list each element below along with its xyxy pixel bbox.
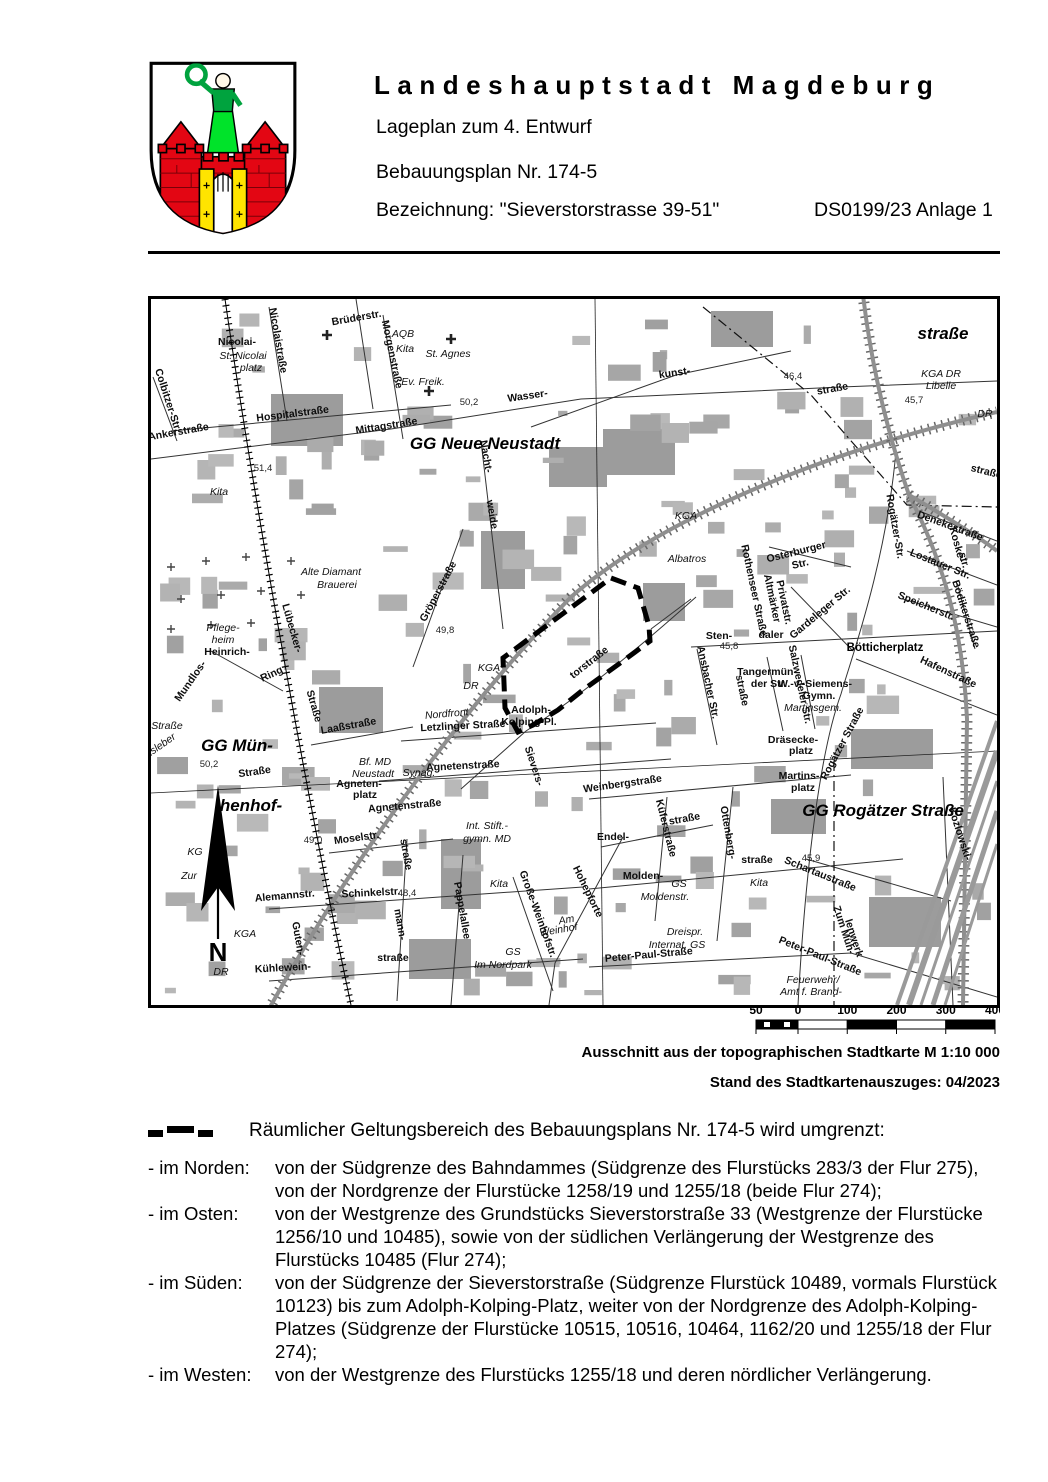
map-label: Im Nordpark: [474, 959, 533, 971]
map-label: Ring: [259, 664, 285, 685]
document-reference: DS0199/23 Anlage 1: [814, 199, 993, 222]
legend-dash-symbol: [148, 1123, 216, 1139]
map-label: KGA: [675, 510, 697, 522]
map-label: Weinbergstraße: [583, 773, 663, 796]
map-label: Bf. MD: [359, 756, 392, 768]
scale-tick-label: 100: [837, 1003, 857, 1017]
map-label: mann-: [391, 908, 408, 942]
boundary-item-west: - im Westen: von der Westgrenze des Flur…: [148, 1363, 1010, 1386]
map-label: Nicolai-: [218, 336, 256, 348]
scale-tick-label: 50: [749, 1003, 763, 1017]
boundary-label: - im Westen:: [148, 1363, 275, 1386]
scale-bar: 500100200300400: [748, 1002, 1000, 1036]
map-label: 49,0: [304, 835, 323, 846]
map-label: Adolph-: [511, 704, 551, 716]
map-label: 49,8: [436, 625, 455, 636]
map-label: Gymn.: [803, 690, 836, 702]
map-label: straße: [668, 810, 701, 827]
map-label: straße: [741, 854, 773, 866]
map-label: Agnetenstraße: [368, 797, 442, 815]
map-label: Kita: [396, 343, 414, 355]
map-label: KG: [187, 846, 202, 858]
map-source-caption: Ausschnitt aus der topographischen Stadt…: [400, 1044, 1000, 1061]
boundary-label: - im Süden:: [148, 1271, 275, 1363]
boundary-text: von der Südgrenze des Bahndammes (Südgre…: [275, 1156, 1010, 1202]
map-label: platz: [353, 789, 377, 801]
document-page: Landeshauptstadt Magdeburg Lageplan zum …: [0, 0, 1048, 1482]
map-label: daler: [758, 629, 783, 641]
map-label: Rogätzer-Str.: [883, 493, 906, 560]
map-label: St. Agnes: [425, 348, 471, 360]
boundary-item-south: - im Süden: von der Südgrenze der Siever…: [148, 1271, 1010, 1363]
map-label: straße.: [970, 462, 997, 482]
map-label: Tangermün-: [737, 666, 797, 678]
map-label: GS: [505, 946, 520, 958]
map-label: Pflege-: [206, 622, 240, 634]
map-label: Libelle: [926, 380, 957, 392]
magdeburg-coat-of-arms: [146, 58, 300, 238]
map-label: 50,2: [200, 759, 219, 770]
map-label: 50,2: [460, 397, 479, 408]
map-label: Große-Weinhofstr.: [517, 869, 560, 959]
map-label: Schinkelstr.: [341, 885, 401, 900]
map-label: 45,8: [720, 641, 739, 652]
map-label: Molden-: [623, 870, 664, 882]
map-label: Brauerei: [317, 579, 357, 591]
map-label: Mittagstraße: [355, 415, 419, 437]
map-label: KGA: [478, 662, 500, 674]
map-label: AQB: [391, 328, 414, 340]
map-label: Mundlos-: [172, 658, 209, 704]
map-label: GG Mün-: [201, 736, 273, 755]
boundary-item-east: - im Osten: von der Westgrenze des Grund…: [148, 1202, 1010, 1271]
map-label: Colbitzer-Str.: [152, 367, 184, 433]
map-label: Endel-: [597, 831, 630, 843]
map-label: Feuerwehr/: [786, 974, 840, 986]
map-canvas: Nicolai-St. NicolaiplatzNicolaistraßeBrü…: [151, 299, 997, 1005]
map-label: Int. Stift.-: [466, 820, 509, 832]
map-label: Agnetenstraße: [426, 758, 500, 774]
map-label: platz: [239, 362, 263, 374]
map-label: Kita: [750, 877, 768, 889]
map-label: Hafenstraße: [918, 654, 978, 691]
map-label: Nicolaistraße: [266, 307, 289, 374]
scale-tick-label: 400: [985, 1003, 1000, 1017]
map-label: N: [209, 937, 228, 967]
plan-designation: Bezeichnung: "Sieverstorstrasse 39-51": [376, 199, 719, 222]
map-label: Wasser-: [507, 387, 549, 405]
map-label: Brüderstr.: [331, 308, 383, 329]
map-label: Martins-: [779, 770, 820, 782]
map-label: KGA: [234, 928, 256, 940]
map-label: Amt f. Brand-: [779, 986, 842, 998]
map-label: Heinrich-: [204, 646, 250, 658]
header-divider: [148, 251, 1000, 254]
map-label: Dreispr.: [667, 926, 703, 938]
map-date-caption: Stand des Stadtkartenauszuges: 04/2023: [400, 1074, 1000, 1091]
map-label: Alte Diamant: [300, 566, 362, 578]
legend-text: Räumlicher Geltungsbereich des Bebauungs…: [249, 1120, 885, 1142]
map-label: straße: [917, 324, 968, 343]
map-label: Kita: [490, 878, 508, 890]
map-label: Gardeleger Str.: [787, 584, 852, 642]
scale-tick-label: 0: [795, 1003, 802, 1017]
map-label: Martinsgem.: [784, 702, 842, 714]
map-labels: Nicolai-St. NicolaiplatzNicolaistraßeBrü…: [151, 307, 997, 998]
map-label: Ottenberg-: [717, 805, 738, 860]
map-label: DR: [977, 408, 993, 420]
topographic-map: Nicolai-St. NicolaiplatzNicolaistraßeBrü…: [148, 296, 1000, 1008]
map-label: Guten-: [289, 921, 307, 957]
map-label: GS: [671, 878, 686, 890]
page-title: Landeshauptstadt Magdeburg: [374, 70, 940, 101]
map-label: Straße: [238, 764, 272, 780]
map-label: GG Rogätzer Straße: [802, 801, 964, 820]
map-label: Kita: [210, 486, 228, 498]
map-label: Moldenstr.: [641, 891, 690, 903]
scale-tick-label: 300: [936, 1003, 956, 1017]
map-label: KGA DR: [921, 368, 961, 380]
boundary-text: von der Westgrenze des Grundstücks Sieve…: [275, 1202, 1010, 1271]
map-label: straße: [733, 674, 751, 707]
map-label: Albatros: [667, 553, 707, 565]
map-label: platz: [791, 782, 815, 794]
map-label: Gröperstraße: [417, 559, 459, 624]
map-label: Alemannstr.: [254, 887, 315, 904]
map-label: St. Nicolai: [219, 350, 267, 362]
map-label: gymn. MD: [463, 833, 511, 845]
map-label: henhof-: [220, 796, 283, 815]
map-label: Ev. Freik.: [401, 376, 445, 388]
plan-number: Bebauungsplan Nr. 174-5: [376, 161, 597, 184]
map-label: DR: [463, 680, 479, 692]
map-label: 48,4: [398, 888, 417, 899]
map-label: Bötticherplatz: [847, 642, 924, 654]
boundary-label: - im Osten:: [148, 1202, 275, 1271]
boundary-text: von der Südgrenze der Sieverstorstraße (…: [275, 1271, 1010, 1363]
map-label: W.-v.-Siemens-: [778, 678, 852, 690]
map-label: 45,7: [905, 395, 924, 406]
map-label: 51,4: [254, 463, 273, 474]
map-label: Hohepforte: [570, 864, 605, 920]
map-label: Straße: [151, 720, 183, 732]
map-label: Sievers-: [522, 745, 546, 788]
boundary-label: - im Norden:: [148, 1156, 275, 1202]
map-label: platz: [789, 745, 813, 757]
map-label: straße: [377, 952, 409, 964]
plan-subtitle: Lageplan zum 4. Entwurf: [376, 116, 592, 139]
map-label: straße: [816, 380, 849, 397]
boundary-item-north: - im Norden: von der Südgrenze des Bahnd…: [148, 1156, 1010, 1202]
map-label: heim: [212, 634, 235, 646]
boundary-description-list: - im Norden: von der Südgrenze des Bahnd…: [148, 1156, 1010, 1386]
map-label: 46,4: [784, 371, 803, 382]
map-label: Zur: [180, 870, 197, 882]
scale-tick-label: 200: [886, 1003, 906, 1017]
map-label: Ansbacher Str.: [694, 645, 721, 720]
legend-row: Räumlicher Geltungsbereich des Bebauungs…: [148, 1120, 1008, 1142]
map-label: DR: [213, 966, 229, 978]
boundary-text: von der Westgrenze des Flurstücks 1255/1…: [275, 1363, 1010, 1386]
